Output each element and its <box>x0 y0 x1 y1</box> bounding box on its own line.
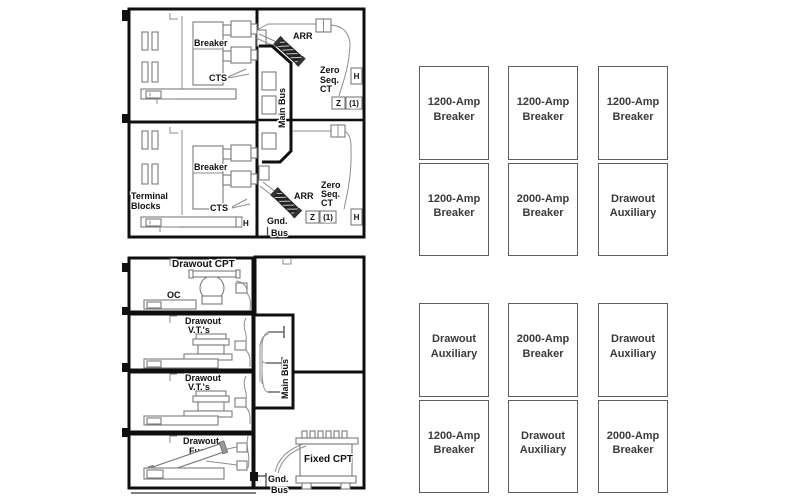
hinge-tab <box>122 307 128 315</box>
cabinet-lower-cell: Drawout Auxiliary <box>508 400 578 494</box>
cable-ct-compartment-upper: ARR Main Bus Zero Seq. CT H Z (1) <box>256 19 362 128</box>
section-views-diagram: Breaker CTS <box>0 0 400 500</box>
cabinet-lower-cell: 2000-Amp Breaker <box>598 400 668 494</box>
drawout-vt-compartment-1: Drawout V.T.'s <box>144 316 250 368</box>
vt-device-icon <box>184 391 232 417</box>
hinge-tab <box>122 428 128 437</box>
gnd-bus-bar <box>258 473 266 487</box>
main-bus-label: Main Bus <box>277 88 287 128</box>
bus-support-icon <box>262 72 276 90</box>
gnd-bus-label-line2: Bus <box>271 485 288 495</box>
cabinet-upper-cell: 1200-Amp Breaker <box>508 66 578 160</box>
bottom-lineup-cabinet-2: 2000-Amp Breaker Drawout Auxiliary <box>508 303 578 493</box>
bottom-lineup-cabinet-1: Drawout Auxiliary 1200-Amp Breaker <box>419 303 489 493</box>
h-label: H <box>354 72 360 81</box>
cabinet-lower-cell: 1200-Amp Breaker <box>419 163 489 257</box>
z-label: Z <box>310 213 315 222</box>
cable-connector <box>235 341 246 350</box>
z-label: Z <box>336 99 341 108</box>
hinge-tab <box>122 114 128 123</box>
drawout-cpt-compartment: Drawout CPT OC Bkr. <box>144 259 250 311</box>
drawout-fuses-label-line1: Drawout <box>183 436 219 446</box>
cable-connector <box>237 443 247 452</box>
switchgear-figure: Breaker CTS <box>0 0 800 500</box>
drawout-vt-compartment-2: Drawout V.T.'s <box>144 373 250 425</box>
bushing-icon <box>259 166 269 180</box>
cabinet-upper-cell: 1200-Amp Breaker <box>419 66 489 160</box>
cabinet-upper-cell: 1200-Amp Breaker <box>598 66 668 160</box>
cable-connector <box>236 283 247 293</box>
breaker-icon <box>193 145 257 209</box>
cabinet-cell-label: 2000-Amp Breaker <box>607 429 660 458</box>
cabinet-cell-label: Drawout Auxiliary <box>610 332 656 361</box>
cabinet-cell-label: 1200-Amp Breaker <box>517 95 570 124</box>
z-count-label: (1) <box>349 99 359 108</box>
cts-pointer-lines <box>228 69 249 78</box>
zero-seq-ct-label-line3: CT <box>321 198 333 208</box>
cabinet-cell-label: 1200-Amp Breaker <box>428 192 481 221</box>
cabinet-lower-cell: Drawout Auxiliary <box>598 163 668 257</box>
cabinet-upper-cell: Drawout Auxiliary <box>598 303 668 397</box>
main-bus-label: Main Bus <box>280 359 290 399</box>
gnd-bus-label-line1: Gnd. <box>267 216 288 226</box>
cable-connector <box>237 461 247 470</box>
cable-ct-compartment-lower: ARR Zero Seq. CT Z (1) H Gnd. Bus <box>259 121 362 238</box>
breaker-label: Breaker <box>194 162 228 172</box>
h-label: H <box>243 219 249 228</box>
top-lineup-cabinet-3: 1200-Amp Breaker Drawout Auxiliary <box>598 66 668 256</box>
cabinet-cell-label: Drawout Auxiliary <box>520 429 566 458</box>
terminal-blocks-icon <box>142 32 158 82</box>
drawout-fuses-compartment: Drawout Fuses <box>144 436 249 479</box>
terminal-blocks-label-line1: Terminal <box>131 191 168 201</box>
cabinet-cell-label: 2000-Amp Breaker <box>517 192 570 221</box>
cts-label: CTS <box>210 203 228 213</box>
bus-support-icon <box>262 96 276 114</box>
top-lineup-cabinet-2: 1200-Amp Breaker 2000-Amp Breaker <box>508 66 578 256</box>
cabinet-upper-cell: Drawout Auxiliary <box>419 303 489 397</box>
cabinet-cell-label: 1200-Amp Breaker <box>428 95 481 124</box>
vt-device-icon <box>184 334 232 360</box>
fixed-cpt-label: Fixed CPT <box>304 454 353 465</box>
bus-support-icon <box>262 133 276 149</box>
cabinet-cell-label: 2000-Amp Breaker <box>517 332 570 361</box>
z-count-label: (1) <box>323 213 333 222</box>
breaker-section-view: Breaker CTS <box>122 9 364 238</box>
bushing-icon <box>257 30 266 46</box>
fixed-cpt-compartment: Fixed CPT Gnd. Bus <box>250 431 358 495</box>
main-bus-channel: Main Bus <box>254 315 293 408</box>
h-marker-box <box>236 217 242 227</box>
terminal-blocks-icon <box>142 131 158 184</box>
gnd-bus-lug <box>250 472 258 481</box>
h-label: H <box>354 213 360 222</box>
auxiliary-section-view: Drawout CPT OC Bkr. Drawout V.T.'s <box>122 257 364 495</box>
arr-label: ARR <box>293 31 313 41</box>
hinge-tab <box>122 363 128 372</box>
cable-connector <box>235 398 246 407</box>
gnd-bus-label-line2: Bus <box>271 228 288 238</box>
zero-seq-ct-label-line3: CT <box>320 84 332 94</box>
cts-pointer-lines <box>232 199 250 208</box>
arr-label: ARR <box>294 191 314 201</box>
breaker-compartment-lower: Breaker CTS Terminal Blocks H <box>131 127 257 232</box>
cabinet-lower-cell: 2000-Amp Breaker <box>508 163 578 257</box>
bottom-lineup-cabinet-3: Drawout Auxiliary 2000-Amp Breaker <box>598 303 668 493</box>
cabinet-cell-label: 1200-Amp Breaker <box>428 429 481 458</box>
top-lineup-cabinet-1: 1200-Amp Breaker 1200-Amp Breaker <box>419 66 489 256</box>
cabinet-upper-cell: 2000-Amp Breaker <box>508 303 578 397</box>
cabinet-lower-cell: 1200-Amp Breaker <box>419 400 489 494</box>
hinge-tab <box>122 263 128 272</box>
gnd-bus-label-line1: Gnd. <box>268 474 289 484</box>
zero-seq-ct-label-line1: Zero <box>320 65 340 75</box>
drawout-cpt-label: Drawout CPT <box>172 259 235 270</box>
cpt-transformer-icon <box>189 270 240 304</box>
breaker-compartment-upper: Breaker CTS <box>141 13 257 104</box>
breaker-label: Breaker <box>194 38 228 48</box>
terminal-blocks-label-line2: Blocks <box>131 201 161 211</box>
hinge-tab <box>122 10 128 21</box>
cabinet-cell-label: 1200-Amp Breaker <box>607 95 660 124</box>
cabinet-cell-label: Drawout Auxiliary <box>431 332 477 361</box>
cabinet-cell-label: Drawout Auxiliary <box>610 192 656 221</box>
cts-label: CTS <box>209 73 227 83</box>
